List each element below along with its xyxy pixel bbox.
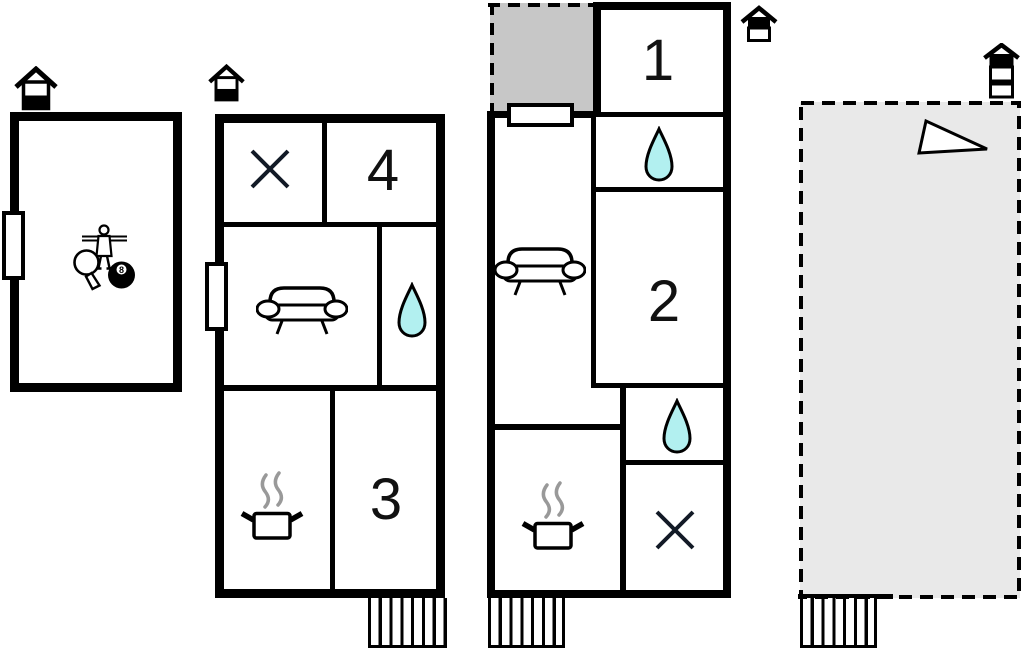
stairs-icon (488, 598, 565, 648)
house-upper-floor-icon (740, 5, 778, 43)
house-ground-floor-icon (208, 62, 245, 105)
gray-court (490, 3, 593, 116)
sofa-icon (256, 280, 348, 338)
door-marker (507, 103, 574, 127)
bedroom-3-label: 3 (370, 471, 402, 529)
wall-segment (596, 187, 723, 192)
house-ground-floor-icon (14, 66, 58, 112)
cross-icon (246, 145, 294, 193)
water-drop-icon (644, 126, 674, 183)
wall-segment (591, 117, 596, 388)
wall-segment (487, 111, 495, 598)
terrace-area (800, 102, 1020, 598)
wall-segment (377, 227, 382, 388)
wall-segment (495, 424, 626, 430)
door-marker (205, 262, 228, 331)
water-drop-icon (662, 398, 692, 455)
wall-segment (723, 117, 731, 598)
bedroom-4-label: 4 (367, 142, 399, 200)
bedroom-1-label: 1 (642, 32, 674, 90)
cooking-pot-icon (516, 478, 590, 552)
wall-segment (591, 383, 723, 388)
svg-text:8: 8 (119, 265, 124, 275)
wall-segment (330, 391, 335, 598)
door-marker (2, 211, 25, 280)
bedroom-2-label: 2 (648, 273, 680, 331)
stairs-icon (800, 598, 877, 648)
sloping-terrain-icon (913, 116, 991, 158)
wall-segment (322, 114, 327, 227)
water-drop-icon (397, 282, 427, 339)
house-top-floor-icon (983, 43, 1020, 100)
wall-segment (215, 222, 445, 227)
floor-plan: 8 4 3 1 2 (0, 0, 1024, 651)
wall-segment (626, 460, 723, 465)
stairs-icon (368, 598, 447, 648)
sofa-icon (494, 241, 586, 299)
games-icons: 8 (72, 224, 142, 292)
wall-segment (620, 388, 626, 598)
cross-icon (651, 506, 699, 554)
cooking-pot-icon (235, 468, 309, 542)
wall-segment (487, 590, 731, 598)
